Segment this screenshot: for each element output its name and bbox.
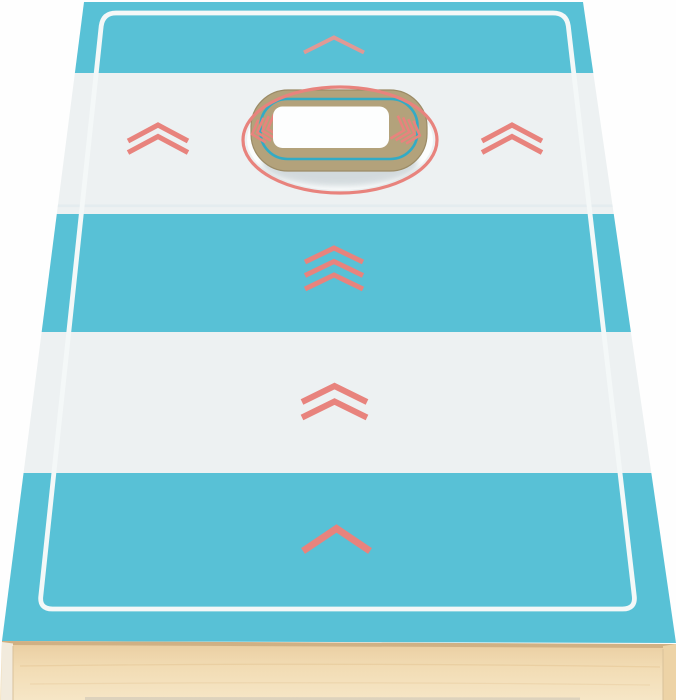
wood-frame-front	[0, 641, 676, 700]
product-photo: Perspective product photo of a wooden co…	[0, 0, 676, 700]
wood-frame	[0, 641, 676, 700]
wood-frame-right-side	[663, 644, 676, 700]
cornhole-board-photo	[0, 0, 676, 700]
stripe-edge-highlight	[20, 205, 660, 208]
stripe-teal-bottom	[0, 473, 676, 645]
board-surface	[0, 0, 676, 645]
target-hole	[243, 87, 437, 193]
handle-cutout	[273, 107, 389, 149]
stripe-teal-middle	[0, 214, 676, 332]
wood-frame-left-side	[1, 642, 13, 700]
